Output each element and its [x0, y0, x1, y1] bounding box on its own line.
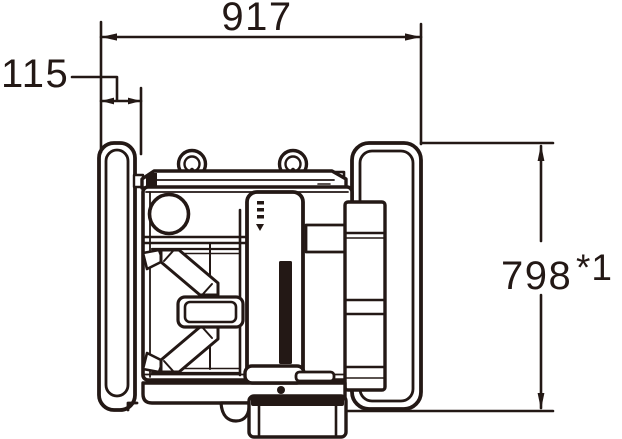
dimension-drawing-svg: 917 115 798 *1 — [0, 0, 622, 439]
base-foot-bump — [221, 403, 249, 421]
pod-label-tick — [257, 201, 264, 205]
side-thin-bar — [296, 372, 334, 381]
drawing-page: 917 115 798 *1 — [0, 0, 622, 439]
hook-pin-right — [291, 168, 295, 172]
dim-label-width: 917 — [221, 0, 292, 39]
base-knob-dot — [277, 386, 285, 394]
arrowhead-right — [405, 33, 421, 40]
arrowhead-left — [101, 98, 114, 105]
dimension-offset-115: 115 — [1, 52, 141, 154]
right-step-block — [306, 225, 345, 252]
left-handle-rail — [99, 143, 135, 410]
arrowhead-down — [538, 393, 545, 410]
left-rail-outer — [99, 143, 135, 410]
pod-slot — [279, 261, 292, 364]
pod-outline — [247, 192, 303, 380]
rail-base-step — [128, 403, 137, 410]
arrowhead-right — [128, 98, 141, 105]
arrowhead-left — [101, 33, 117, 40]
pod-label-tick — [257, 215, 264, 219]
connector-stack — [345, 202, 385, 390]
hook-pin-left — [190, 168, 194, 172]
leader-line — [72, 77, 117, 100]
dim-label-offset: 115 — [1, 52, 69, 96]
arrowhead-up — [538, 145, 545, 162]
dim-label-height: 798 — [501, 254, 572, 298]
dimension-width-917: 917 — [101, 0, 421, 152]
dim-label-height-note: *1 — [576, 247, 613, 288]
pod-label-tick — [257, 208, 264, 212]
tray-top-bar — [251, 397, 344, 406]
machine-top-view — [99, 143, 421, 437]
bottom-tray — [249, 396, 346, 437]
